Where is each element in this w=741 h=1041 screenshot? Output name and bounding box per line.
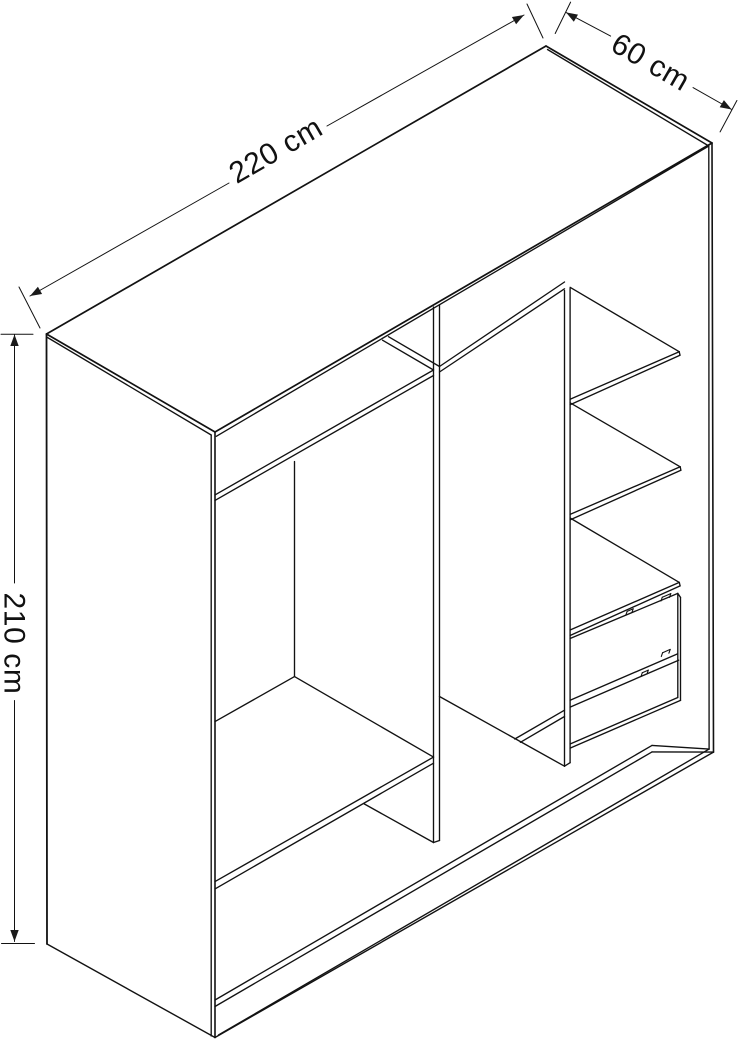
svg-text:210 cm: 210 cm (0, 593, 31, 695)
